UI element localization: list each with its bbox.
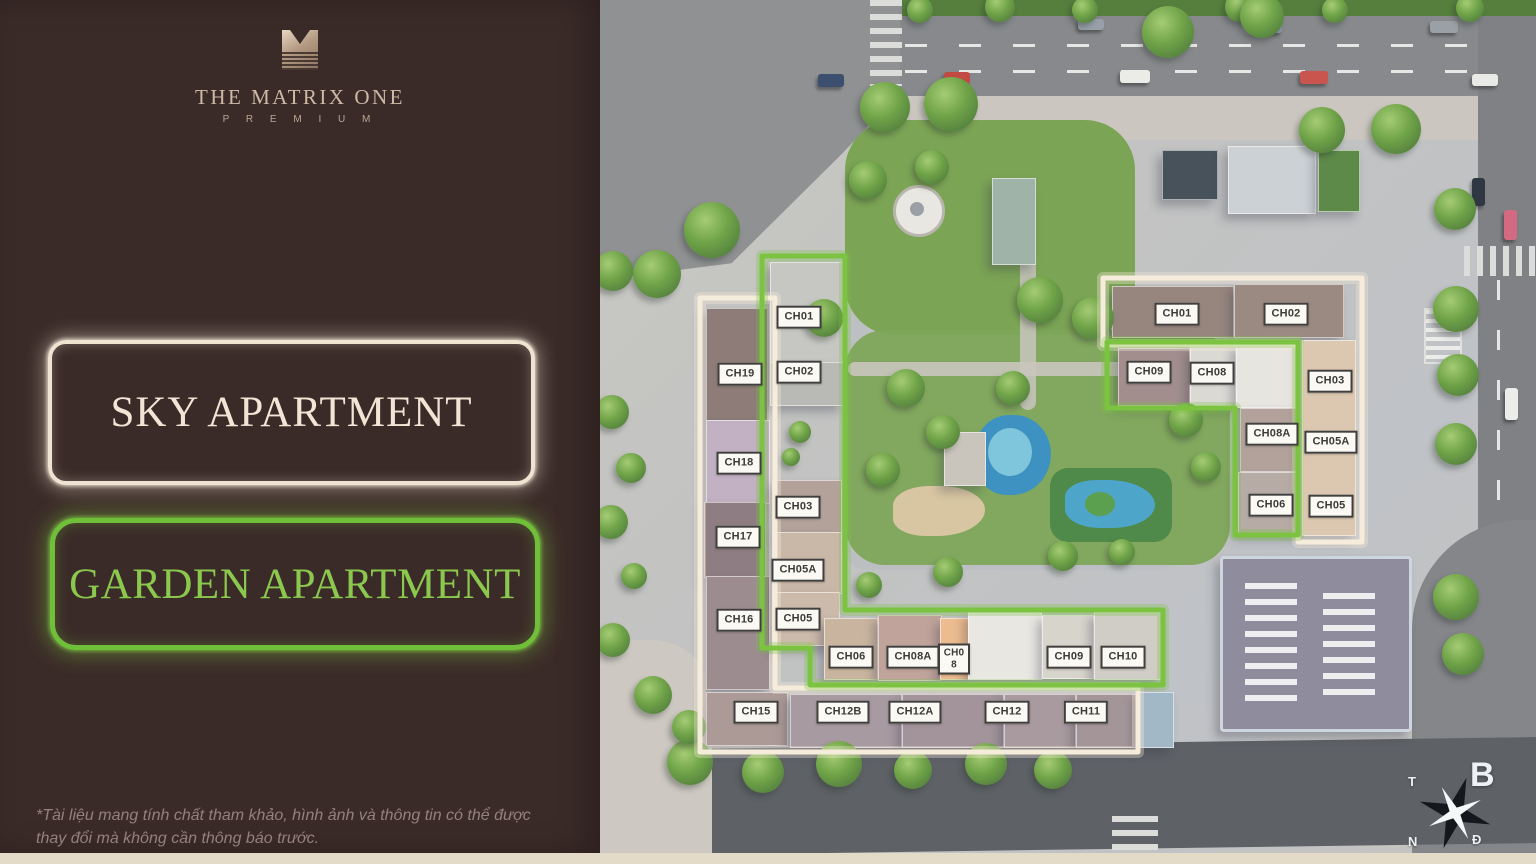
tree	[672, 710, 706, 744]
tree	[926, 415, 960, 449]
tree	[924, 77, 978, 131]
lane-dashes-right	[1497, 280, 1500, 520]
matrix-one-monogram-icon	[282, 30, 318, 70]
swimming-pool-shallow	[988, 428, 1032, 476]
unit-label-ch02: CH02	[1264, 303, 1309, 326]
tree	[1191, 452, 1221, 482]
crosswalk-right	[1464, 246, 1536, 276]
unit-label-ch05a: CH05A	[1304, 431, 1357, 454]
unit-label-ch08a: CH08A	[886, 646, 939, 669]
unit-label-ch03: CH03	[776, 496, 821, 519]
tree	[1437, 354, 1479, 396]
gazebo-roof	[910, 202, 924, 216]
tree	[1034, 751, 1072, 789]
building-block	[1228, 146, 1316, 214]
building-block	[1236, 344, 1300, 408]
car	[1430, 21, 1458, 33]
brand-logo: THE MATRIX ONE P R E M I U M	[150, 30, 450, 125]
unit-label-ch06: CH06	[829, 646, 874, 669]
building-block	[1162, 150, 1218, 200]
tree	[965, 743, 1007, 785]
tree	[616, 453, 646, 483]
tree	[782, 448, 800, 466]
tree	[1072, 297, 1114, 339]
tree	[1109, 539, 1135, 565]
tree	[860, 82, 910, 132]
tree	[633, 250, 681, 298]
tree	[1435, 423, 1477, 465]
unit-label-ch03: CH03	[1308, 370, 1353, 393]
tree	[915, 150, 949, 184]
unit-label-ch19: CH19	[718, 363, 763, 386]
unit-label-ch05a: CH05A	[771, 559, 824, 582]
tree	[849, 161, 887, 199]
car	[1472, 74, 1498, 86]
car	[1120, 70, 1150, 83]
tree	[684, 202, 740, 258]
unit-label-ch01: CH01	[1155, 303, 1200, 326]
unit-label-ch16: CH16	[717, 609, 762, 632]
unit-label-ch08: CH08	[938, 644, 970, 675]
unit-label-ch08: CH08	[1190, 362, 1235, 385]
building-block	[992, 178, 1036, 265]
tree	[1048, 541, 1078, 571]
unit-label-ch02: CH02	[777, 361, 822, 384]
tree	[816, 741, 862, 787]
car	[1300, 71, 1328, 84]
tree	[1433, 574, 1479, 620]
tree	[634, 676, 672, 714]
tree	[667, 739, 713, 785]
tree	[866, 453, 900, 487]
brand-panel: THE MATRIX ONE P R E M I U M SKY APARTME…	[0, 0, 600, 853]
compass-rose: B T N Đ	[1396, 762, 1536, 862]
brand-subtitle: P R E M I U M	[150, 114, 450, 125]
unit-label-ch18: CH18	[717, 452, 762, 475]
bottom-strip	[0, 853, 1536, 864]
lane-dashes-top-2	[905, 70, 1536, 73]
unit-label-ch15: CH15	[734, 701, 779, 724]
unit-label-ch11: CH11	[1064, 701, 1108, 724]
unit-label-ch10: CH10	[1101, 646, 1146, 669]
unit-label-ch12a: CH12A	[888, 701, 941, 724]
unit-label-ch05: CH05	[1309, 495, 1354, 518]
tree	[887, 369, 925, 407]
crosswalk-top	[870, 0, 902, 86]
compass-west-label: T	[1408, 774, 1416, 789]
tree	[596, 623, 630, 657]
unit-label-ch09: CH09	[1127, 361, 1172, 384]
tree	[595, 395, 629, 429]
tree	[789, 421, 811, 443]
compass-north-label: B	[1470, 756, 1495, 795]
car	[1504, 210, 1517, 240]
tree	[742, 751, 784, 793]
unit-label-ch01: CH01	[777, 306, 822, 329]
tree	[621, 563, 647, 589]
tree	[856, 572, 882, 598]
playground-lawn	[1085, 492, 1115, 516]
unit-label-ch08a: CH08A	[1245, 423, 1298, 446]
tree	[1169, 403, 1203, 437]
tree	[933, 557, 963, 587]
crosswalk-bottom	[1112, 816, 1158, 858]
compass-east-label: Đ	[1472, 832, 1481, 847]
tree	[1017, 277, 1063, 323]
tree	[1433, 286, 1479, 332]
lane-dashes-top-1	[905, 44, 1536, 47]
compass-south-label: N	[1408, 834, 1417, 849]
tree	[894, 751, 932, 789]
unit-label-ch06: CH06	[1249, 494, 1294, 517]
tree	[1299, 107, 1345, 153]
unit-label-ch12b: CH12B	[816, 701, 869, 724]
tree	[1442, 633, 1484, 675]
tree	[1142, 6, 1194, 58]
building-block	[706, 576, 770, 690]
building-block	[1138, 692, 1174, 748]
unit-label-ch09: CH09	[1047, 646, 1092, 669]
tree	[996, 371, 1030, 405]
building-amenity	[1220, 556, 1412, 732]
road-right	[1478, 16, 1536, 536]
tree	[1434, 188, 1476, 230]
building-block	[1318, 150, 1360, 212]
tree	[1371, 104, 1421, 154]
unit-label-ch17: CH17	[716, 526, 761, 549]
car	[818, 74, 844, 87]
brand-title: THE MATRIX ONE	[150, 85, 450, 110]
unit-label-ch12: CH12	[985, 701, 1030, 724]
matrix-one-siteplan-slide: CH19CH18CH17CH16CH15CH12BCH12ACH12CH11CH…	[0, 0, 1536, 864]
car	[1505, 388, 1518, 420]
building-block	[968, 612, 1042, 680]
badge-sky-apartment: SKY APARTMENT	[48, 340, 535, 485]
badge-garden-apartment: GARDEN APARTMENT	[50, 518, 540, 650]
disclaimer-text: *Tài liệu mang tính chất tham khảo, hình…	[36, 804, 546, 850]
unit-label-ch05: CH05	[776, 608, 821, 631]
